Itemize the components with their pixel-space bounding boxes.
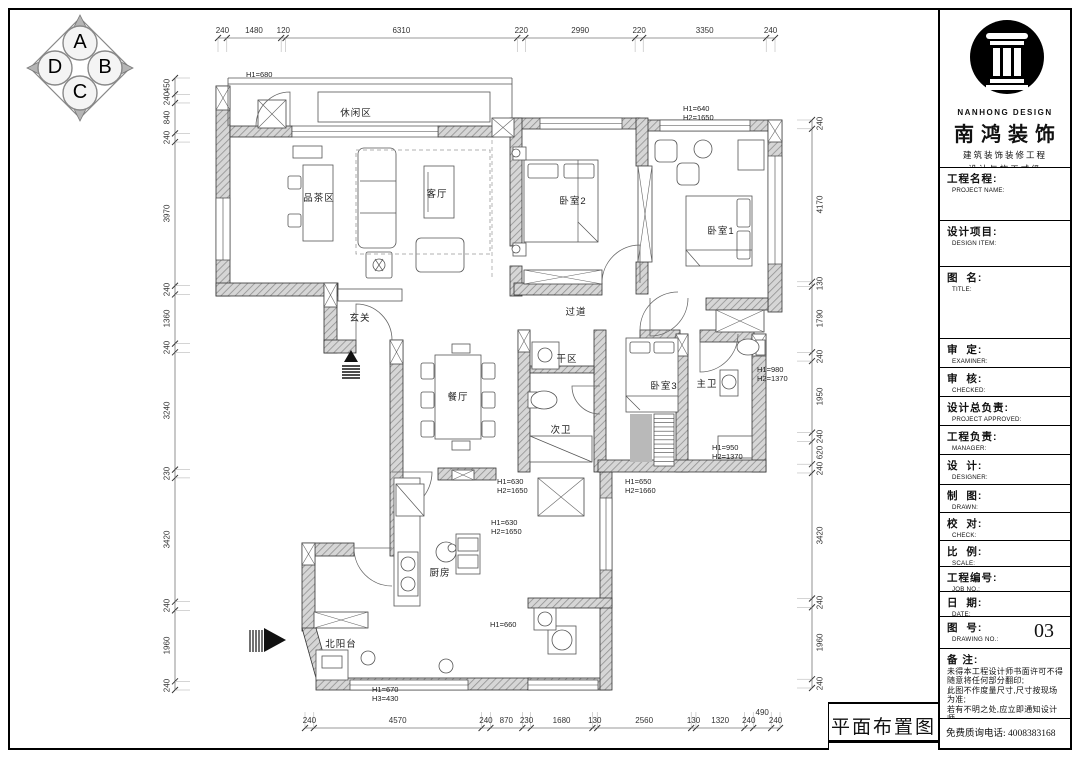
- plan-labels-layer: 2401480120631022029902203350240240457024…: [0, 0, 1080, 758]
- room-label: 主卫: [696, 376, 717, 390]
- titleblock-field: 审 核:CHECKED:: [940, 367, 1070, 396]
- title-block: NANHONG DESIGN 南鸿装饰 建筑装饰装修工程 设计与施工贰级 #NO…: [938, 8, 1072, 750]
- dim-label-left: 3970: [163, 188, 172, 238]
- company-logo-area: NANHONG DESIGN 南鸿装饰 建筑装饰装修工程 设计与施工贰级 #NO…: [940, 10, 1070, 167]
- room-label: 品茶区: [303, 190, 335, 204]
- height-annotation: H1=630H2=1650: [491, 518, 522, 537]
- compass-letter-d: D: [48, 56, 62, 79]
- column-logo-icon: [940, 10, 1070, 102]
- dim-label-bottom: 4570: [370, 716, 426, 725]
- dim-label-top: 6310: [373, 26, 429, 35]
- dim-label-top: 3350: [677, 26, 733, 35]
- dim-label-right: 240: [816, 443, 825, 493]
- brand-name-cn: 南鸿装饰: [946, 118, 1070, 147]
- height-annotation: H1=950H2=1370: [712, 443, 743, 462]
- notes-title: 备 注:: [947, 652, 1066, 667]
- room-label: 干区: [556, 351, 577, 365]
- dim-label-bottom: 240: [748, 716, 804, 725]
- compass-letter-b: B: [98, 56, 111, 79]
- compass-graphic: [24, 12, 136, 124]
- brand-subtitle-1: 建筑装饰装修工程: [940, 149, 1070, 161]
- titleblock-field: 校 对:CHECK:: [940, 512, 1070, 540]
- dim-label-left: 3240: [163, 385, 172, 435]
- drawing-title-box: 平面布置图: [828, 702, 938, 750]
- dim-label-left: 240: [163, 660, 172, 710]
- dim-label-left: 230: [163, 448, 172, 498]
- titleblock-field: 审 定:EXAMINER:: [940, 338, 1070, 367]
- blueprint-page: 2401480120631022029902203350240240457024…: [0, 0, 1080, 758]
- dim-label-bottom: 130: [567, 716, 623, 725]
- titleblock-field: 设计总负责:PROJECT APPROVED:: [940, 396, 1070, 425]
- service-phone: 免费质询电话: 4008383168: [940, 718, 1070, 749]
- notes-section: 备 注: 未得本工程设计师书面许可不得随意将任何部分翻印;此图不作度量尺寸,尺寸…: [940, 648, 1070, 718]
- room-label: 卧室2: [559, 193, 586, 207]
- dim-label-top: 240: [743, 26, 799, 35]
- dim-label-left: 240: [163, 322, 172, 372]
- dim-label-left: 240: [163, 112, 172, 162]
- room-label: 卧室1: [707, 223, 734, 237]
- dim-label-right: 240: [816, 99, 825, 149]
- dim-label-right: 3420: [816, 510, 825, 560]
- compass-letter-a: A: [73, 31, 86, 54]
- notes-lines: 未得本工程设计师书面许可不得随意将任何部分翻印;此图不作度量尺寸,尺寸按现场为准…: [947, 667, 1066, 718]
- room-label: 北阳台: [325, 636, 357, 650]
- titleblock-field: 比 例:SCALE:: [940, 540, 1070, 566]
- height-annotation: H1=630H2=1650: [497, 477, 528, 496]
- brand-name-en: NANHONG DESIGN: [940, 108, 1070, 117]
- compass-rose: A B C D: [24, 12, 136, 124]
- drawing-title: 平面布置图: [829, 712, 938, 743]
- height-annotation: H1=980H2=1370: [757, 365, 788, 384]
- dim-label-top: 2990: [552, 26, 608, 35]
- titleblock-field: 制 图:DRAWN:: [940, 484, 1070, 512]
- dim-label-right: 4170: [816, 180, 825, 230]
- height-annotation: H1=650H2=1660: [625, 477, 656, 496]
- drawing-number-value: 03: [1034, 620, 1054, 643]
- titleblock-field: 设计项目:DESIGN ITEM:: [940, 220, 1070, 266]
- note-line: 若有不明之处,应立即通知设计: [947, 705, 1066, 714]
- titleblock-field: 日 期:DATE:: [940, 591, 1070, 616]
- titleblock-field: 工程名程:PROJECT NAME:: [940, 167, 1070, 220]
- titleblock-field: 工程编号:JOB NO.:: [940, 566, 1070, 591]
- dim-label-bottom: 2560: [616, 716, 672, 725]
- room-label: 玄关: [349, 310, 370, 324]
- dim-label-right: 240: [816, 658, 825, 708]
- room-label: 卧室3: [650, 378, 677, 392]
- height-annotation: H1=670H3=430: [372, 685, 398, 704]
- titleblock-field: 图 号:DRAWING NO.:03: [940, 616, 1070, 648]
- dim-label-top: 120: [255, 26, 311, 35]
- height-annotation: H1=660: [490, 620, 516, 629]
- note-line: 随意将任何部分翻印;: [947, 676, 1066, 685]
- note-line: 为准;: [947, 695, 1066, 704]
- room-label: 客厅: [426, 186, 447, 200]
- titleblock-fields: 工程名程:PROJECT NAME:设计项目:DESIGN ITEM:图 名:T…: [940, 167, 1070, 648]
- room-label: 餐厅: [447, 389, 468, 403]
- dim-label-top: 220: [611, 26, 667, 35]
- titleblock-field: 图 名:TITLE:: [940, 266, 1070, 338]
- titleblock-field: 工程负责:MANAGER:: [940, 425, 1070, 454]
- height-annotation: H1=640H2=1650: [683, 104, 714, 123]
- height-annotation: H1=680: [246, 70, 272, 79]
- compass-letter-c: C: [73, 81, 87, 104]
- dim-label-bottom: 240: [281, 716, 337, 725]
- room-label: 次卫: [550, 422, 571, 436]
- titleblock-field: 设 计:DESIGNER:: [940, 454, 1070, 484]
- dim-label-left: 3420: [163, 514, 172, 564]
- room-label: 过道: [565, 304, 586, 318]
- note-line: 此图不作度量尺寸,尺寸按现场: [947, 686, 1066, 695]
- dim-label-top: 220: [493, 26, 549, 35]
- room-label: 休闲区: [340, 105, 372, 119]
- room-label: 厨房: [429, 565, 450, 579]
